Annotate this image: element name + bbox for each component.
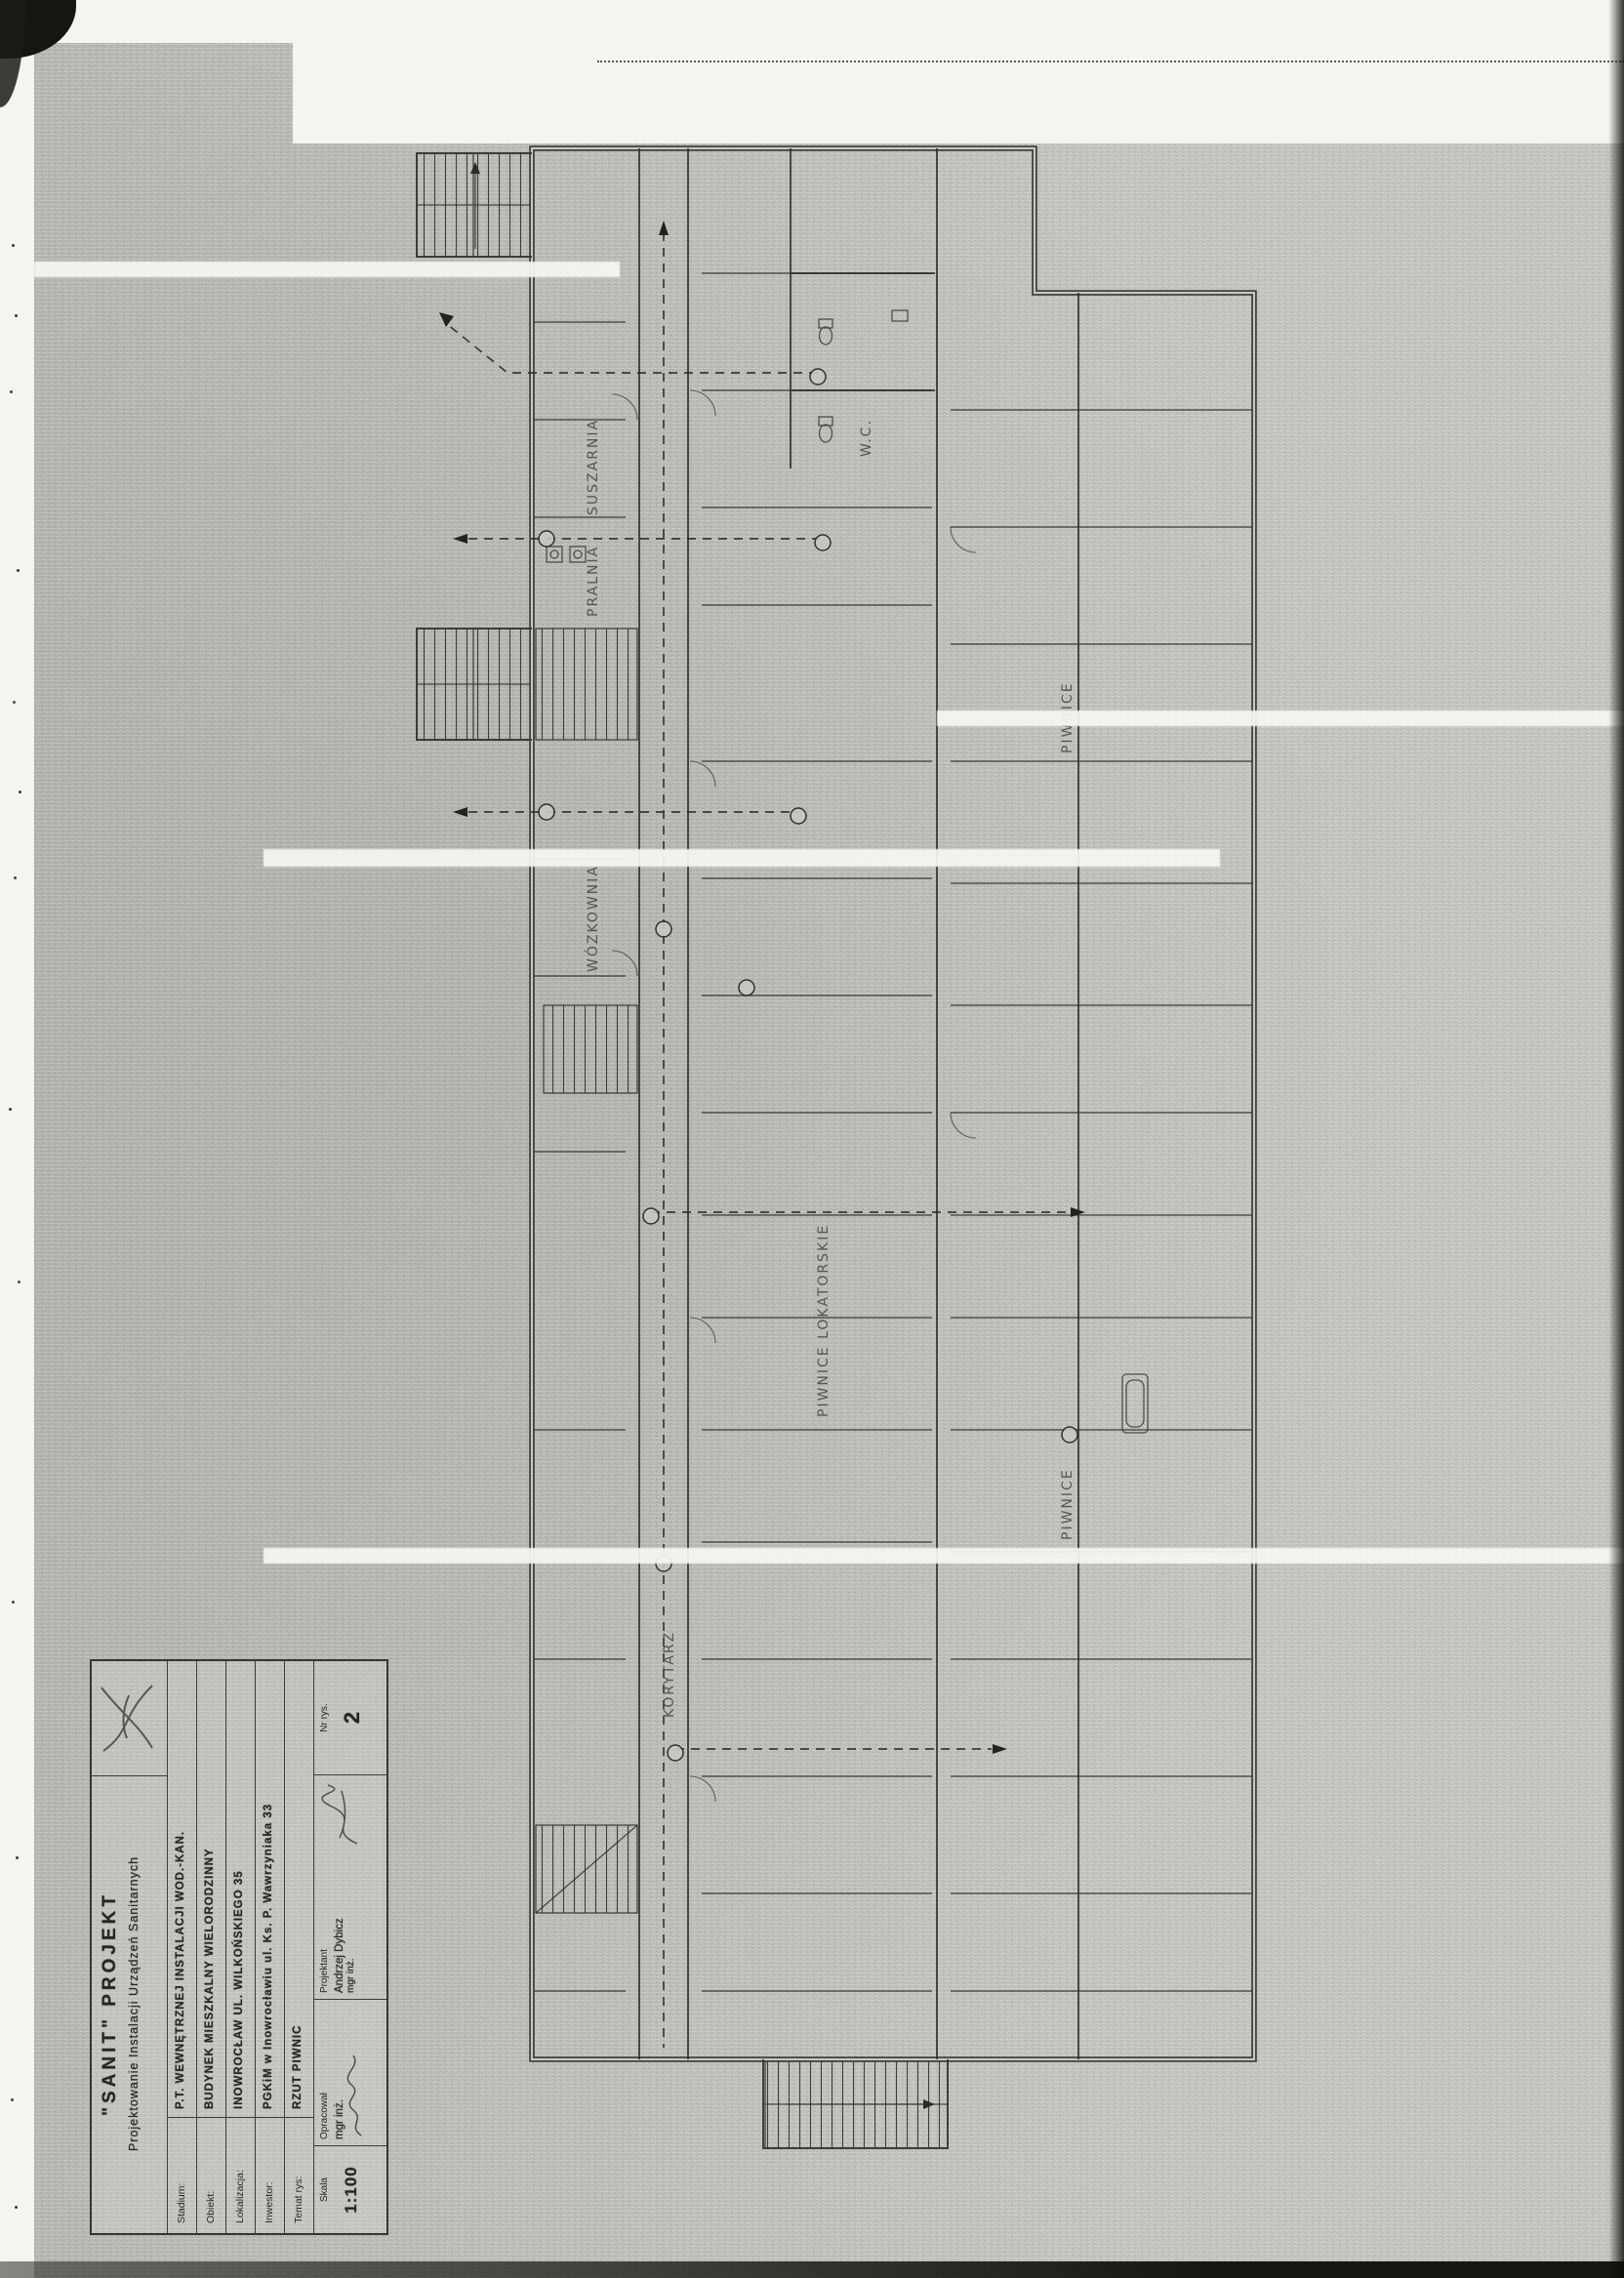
room-label: PIWNICE LOKATORSKIE	[816, 1224, 832, 1417]
row-value: INOWROCŁAW UL. WILKOŃSKIEGO 35	[226, 1661, 255, 2118]
room-label: PIWNICE	[1060, 1468, 1076, 1540]
drafted-by-cell: Opracował mgr inż.	[314, 1999, 386, 2145]
scan-edge-bottom	[0, 2261, 1624, 2278]
title-block-bottom-band: Skala 1:100 Opracował mgr inż. Projektan…	[314, 1661, 386, 2233]
designer-cell: Projektant Andrzej Dybicz mgr inż.	[314, 1774, 386, 1999]
row-label: Temat rys:	[285, 2118, 313, 2233]
row-value: BUDYNEK MIESZKALNY WIELORODZINNY	[197, 1661, 225, 2118]
scan-edge-right	[1608, 0, 1624, 2278]
margin-specks	[12, 244, 15, 247]
scanner-streak	[264, 1548, 1624, 1564]
scanner-streak	[34, 262, 620, 277]
row-label: Lokalizacja:	[226, 2118, 255, 2233]
pipe-arrowheads	[439, 221, 1085, 1754]
room-label: WÓZKOWNIA	[584, 865, 601, 972]
scale-cell: Skala 1:100	[314, 2145, 386, 2233]
title-row-obiekt: Obiekt: BUDYNEK MIESZKALNY WIELORODZINNY	[197, 1661, 226, 2233]
signature-scribble	[318, 1781, 367, 1850]
room-label: KORYTARZ	[662, 1631, 677, 1718]
room-partitions	[534, 273, 1252, 1991]
pen-scribble-icon	[92, 1660, 164, 1775]
scanner-streak	[937, 711, 1624, 726]
door-swings	[612, 390, 976, 1802]
room-label: SUSZARNIA	[586, 419, 601, 515]
company-name: "SANIT" PROJEKT	[100, 1786, 121, 2221]
room-labels: PRALNIA SUSZARNIA WÓZKOWNIA W.C. PIWNICE…	[584, 419, 1076, 1718]
top-margin-band	[293, 0, 1624, 143]
title-row-lokalizacja: Lokalizacja: INOWROCŁAW UL. WILKOŃSKIEGO…	[226, 1661, 256, 2233]
company-cell: "SANIT" PROJEKT Projektowanie Instalacji…	[92, 1776, 167, 2233]
row-label: Obiekt:	[197, 2118, 225, 2233]
drafted-by-label: Opracował	[319, 2006, 330, 2139]
drafted-by-name: mgr inż.	[334, 2006, 345, 2139]
perforation-dotted-edge	[597, 61, 1624, 62]
scale-label: Skala	[319, 2152, 330, 2227]
scale-value: 1:100	[342, 2152, 361, 2227]
scanner-streak	[264, 849, 1220, 867]
title-block: "SANIT" PROJEKT Projektowanie Instalacji…	[90, 1659, 388, 2235]
title-row-stadium: Stadium: P.T. WEWNĘTRZNEJ INSTALACJI WOD…	[168, 1661, 197, 2233]
title-row-temat: Temat rys: RZUT PIWNIC	[285, 1661, 314, 2233]
drawing-number-value: 2	[340, 1667, 365, 1769]
sanitary-fixtures	[547, 310, 1148, 1433]
room-label: W.C.	[859, 419, 874, 457]
room-label: PRALNIA	[586, 546, 601, 617]
logo-cell	[92, 1661, 167, 1776]
row-value: RZUT PIWNIC	[285, 1661, 313, 2118]
company-subtitle: Projektowanie Instalacji Urządzeń Sanita…	[127, 1786, 141, 2221]
drawing-number-cell: Nr rys. 2	[314, 1661, 386, 1774]
signature-scribble	[345, 2052, 367, 2139]
row-label: Inwestor:	[256, 2118, 284, 2233]
row-label: Stadium:	[168, 2118, 196, 2233]
scanned-drawing-page: { "sheet": { "paper_color": "#c7c7c3", "…	[0, 0, 1624, 2278]
row-value: PGKiM w Inowrocławiu ul. Ks. P. Wawrzyni…	[256, 1661, 284, 2118]
title-row-inwestor: Inwestor: PGKiM w Inowrocławiu ul. Ks. P…	[256, 1661, 285, 2233]
left-margin	[0, 0, 34, 2278]
pipe-runs-dashed	[447, 232, 1070, 2048]
drawing-number-label: Nr rys.	[319, 1667, 330, 1769]
row-value: P.T. WEWNĘTRZNEJ INSTALACJI WOD.-KAN.	[168, 1661, 196, 2118]
title-block-header: "SANIT" PROJEKT Projektowanie Instalacji…	[92, 1661, 168, 2233]
